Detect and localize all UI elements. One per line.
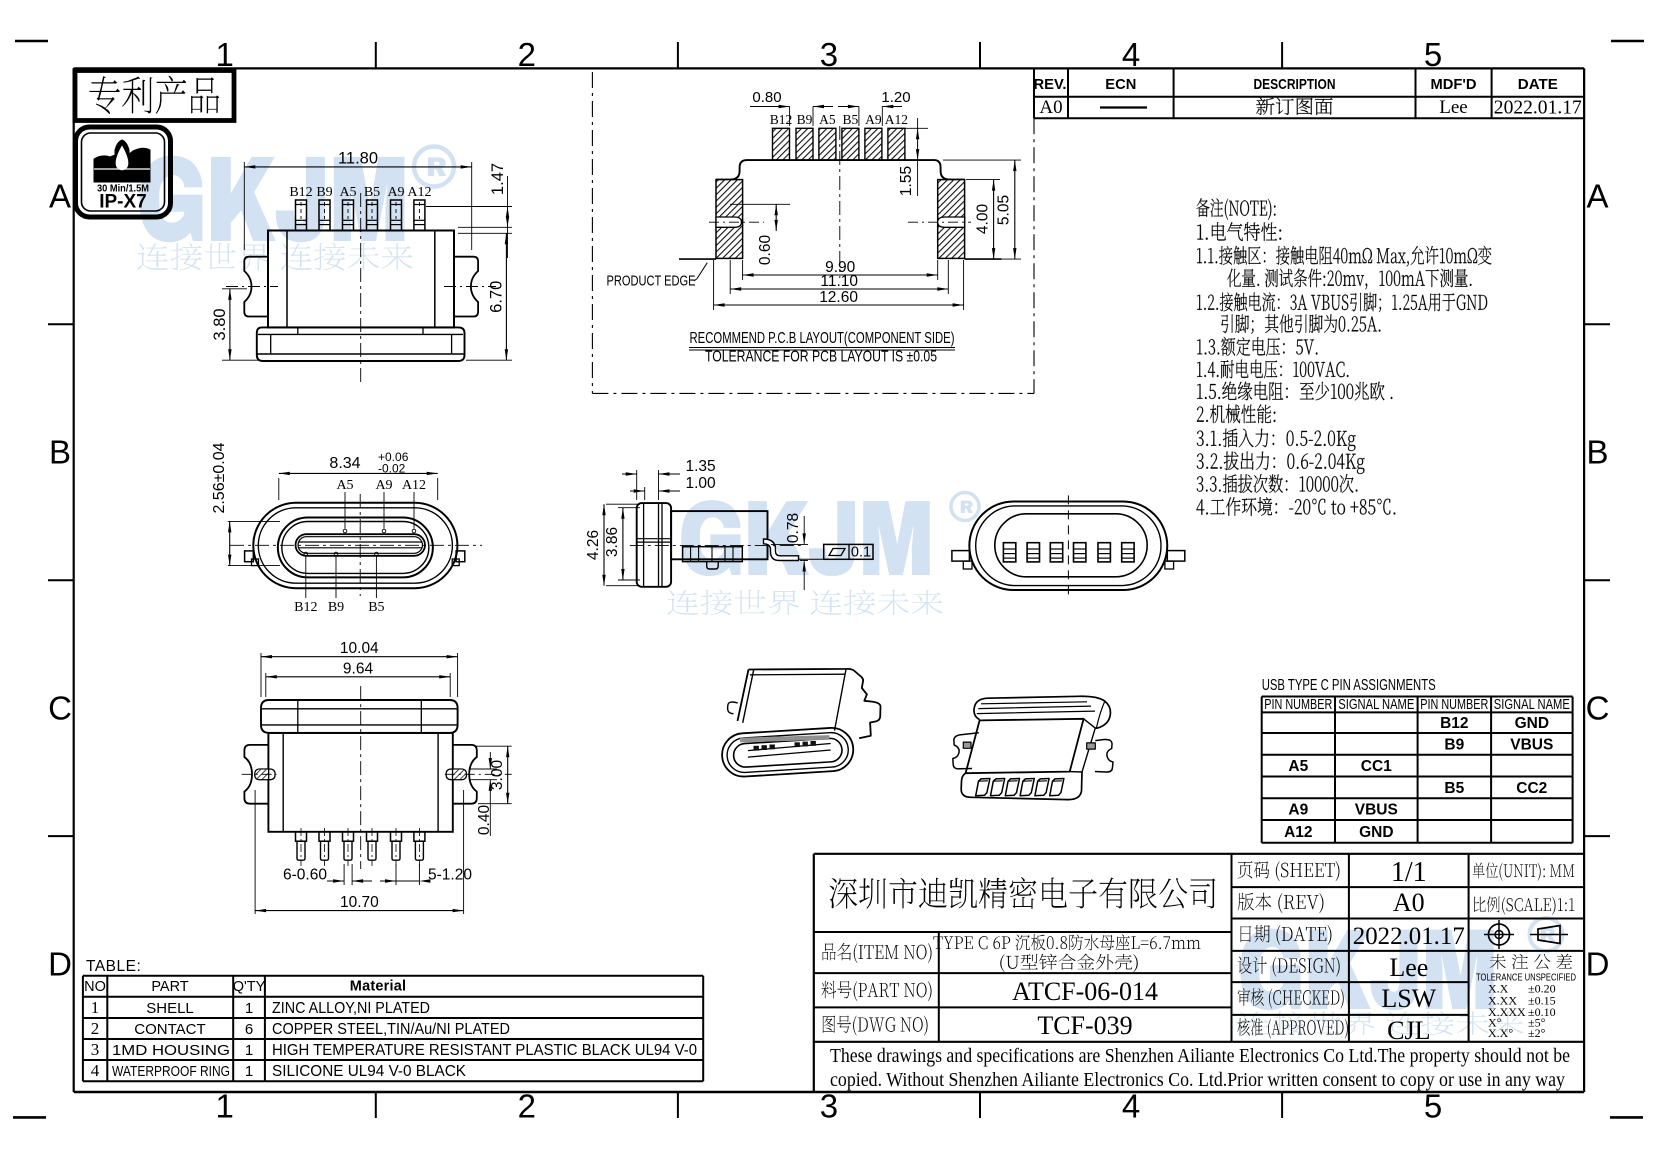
svg-text:A9: A9 [375, 478, 392, 493]
svg-text:4: 4 [91, 1061, 100, 1080]
svg-text:These drawings and specificati: These drawings and specifications are Sh… [830, 1046, 1570, 1067]
svg-text:IP-X7: IP-X7 [99, 192, 147, 213]
svg-text:HIGH TEMPERATURE RESISTANT: HIGH TEMPERATURE RESISTANT PLASTIC BLACK… [272, 1042, 697, 1059]
svg-text:ATCF-06-014: ATCF-06-014 [1012, 977, 1158, 1006]
svg-text:5.05: 5.05 [996, 195, 1013, 225]
svg-text:1: 1 [216, 1088, 234, 1125]
svg-text:GND: GND [1515, 715, 1549, 732]
svg-text:B: B [1586, 434, 1608, 471]
svg-text:0.1: 0.1 [851, 545, 871, 561]
svg-text:A12: A12 [1284, 824, 1312, 841]
svg-text:4.00: 4.00 [975, 204, 992, 235]
svg-text:10.70: 10.70 [340, 894, 379, 911]
svg-text:RECOMMEND P.C.B LAYOUT(COMPONE: RECOMMEND P.C.B LAYOUT(COMPONENT SIDE) [690, 330, 955, 347]
svg-text:ZINC ALLOY,NI PLATED: ZINC ALLOY,NI PLATED [272, 1000, 430, 1017]
svg-text:1: 1 [245, 1000, 253, 1017]
svg-text:CONTACT: CONTACT [134, 1021, 205, 1038]
svg-text:3: 3 [820, 36, 838, 73]
svg-text:A12: A12 [885, 112, 908, 127]
svg-text:SIGNAL NAME: SIGNAL NAME [1494, 697, 1570, 713]
svg-text:11.10: 11.10 [820, 273, 858, 290]
svg-text:4: 4 [1122, 1088, 1140, 1125]
svg-text:SHELL: SHELL [146, 1000, 194, 1017]
svg-text:B9: B9 [797, 112, 813, 127]
svg-text:1MD HOUSING: 1MD HOUSING [112, 1043, 230, 1059]
svg-text:8.34: 8.34 [329, 455, 360, 472]
svg-text:PART: PART [151, 979, 188, 995]
svg-text:SILICONE UL94 V-0 BLACK: SILICONE UL94 V-0 BLACK [272, 1063, 467, 1080]
svg-text:5: 5 [1424, 1088, 1442, 1125]
svg-text:4.26: 4.26 [585, 530, 602, 560]
svg-text:B12: B12 [770, 112, 793, 127]
svg-text:2.56±0.04: 2.56±0.04 [211, 442, 228, 513]
svg-text:B5: B5 [1444, 780, 1464, 797]
svg-text:DATE: DATE [1518, 76, 1558, 93]
svg-text:A5: A5 [339, 185, 356, 200]
svg-text:3.80: 3.80 [211, 308, 229, 340]
svg-text:B5: B5 [368, 600, 384, 615]
svg-text:Material: Material [350, 979, 406, 995]
svg-text:COPPER STEEL,TIN/Au/NI PLATE: COPPER STEEL,TIN/Au/NI PLATED [272, 1021, 510, 1038]
svg-text:X.X°: X.X° [1488, 1026, 1513, 1040]
svg-text:B9: B9 [328, 600, 344, 615]
svg-text:A: A [49, 178, 71, 215]
svg-text:MDF'D: MDF'D [1431, 76, 1477, 93]
svg-text:B9: B9 [316, 185, 332, 200]
svg-text:PIN NUMBER: PIN NUMBER [1264, 697, 1332, 713]
svg-text:1/1: 1/1 [1391, 857, 1427, 888]
svg-text:A5: A5 [1288, 758, 1308, 775]
svg-text:1.00: 1.00 [686, 475, 717, 492]
svg-text:9.64: 9.64 [343, 660, 374, 677]
svg-text:B12: B12 [289, 185, 312, 200]
svg-text:6: 6 [245, 1021, 253, 1038]
svg-text:10.04: 10.04 [340, 640, 379, 657]
svg-text:C: C [48, 690, 72, 727]
svg-text:B: B [49, 434, 71, 471]
svg-text:4: 4 [1122, 36, 1140, 73]
svg-text:CJL: CJL [1387, 1016, 1430, 1045]
svg-text:C: C [1586, 690, 1610, 727]
svg-text:5-1.20: 5-1.20 [428, 867, 472, 884]
svg-text:A12: A12 [402, 478, 426, 493]
svg-text:3.00: 3.00 [489, 760, 506, 791]
svg-text:D: D [48, 946, 72, 983]
svg-text:REV.: REV. [1034, 76, 1067, 93]
svg-text:B12: B12 [294, 600, 317, 615]
svg-text:1: 1 [91, 998, 100, 1017]
svg-text:1: 1 [245, 1042, 253, 1059]
svg-text:Lee: Lee [1389, 953, 1428, 982]
svg-text:VBUS: VBUS [1510, 736, 1553, 753]
svg-text:D: D [1586, 946, 1610, 983]
svg-text:3: 3 [820, 1088, 838, 1125]
svg-text:B5: B5 [843, 112, 859, 127]
svg-text:TCF-039: TCF-039 [1037, 1011, 1132, 1040]
svg-text:NO: NO [84, 979, 106, 995]
svg-text:TABLE:: TABLE: [86, 958, 141, 975]
svg-text:A0: A0 [1393, 888, 1425, 917]
svg-text:PIN NUMBER: PIN NUMBER [1420, 697, 1488, 713]
svg-text:TOLERANCE FOR PCB LAYOUT IS ±0: TOLERANCE FOR PCB LAYOUT IS ±0.05 [705, 349, 937, 366]
svg-text:1: 1 [216, 36, 234, 73]
svg-text:0.78: 0.78 [785, 513, 802, 543]
svg-text:2: 2 [91, 1019, 100, 1038]
svg-text:Lee: Lee [1439, 97, 1467, 118]
svg-text:6.70: 6.70 [487, 281, 505, 313]
svg-text:DESCRIPTION: DESCRIPTION [1254, 76, 1336, 93]
svg-text:1.35: 1.35 [686, 458, 716, 475]
svg-text:0.60: 0.60 [757, 235, 774, 266]
svg-text:A: A [1586, 178, 1608, 215]
svg-text:11.80: 11.80 [338, 149, 378, 167]
svg-text:6-0.60: 6-0.60 [283, 867, 327, 884]
svg-text:USB TYPE C PIN ASSIGNMENTS: USB TYPE C PIN ASSIGNMENTS [1262, 677, 1436, 694]
svg-text:0.40: 0.40 [476, 805, 493, 836]
svg-text:LSW: LSW [1381, 984, 1436, 1013]
svg-text:A5: A5 [336, 478, 353, 493]
svg-text:Q'TY: Q'TY [233, 979, 266, 995]
svg-text:ECN: ECN [1105, 76, 1136, 93]
svg-text:copied. Without Shenzhen Ailia: copied. Without Shenzhen Ailiante Electr… [830, 1070, 1565, 1091]
svg-text:GND: GND [1359, 824, 1393, 841]
svg-text:A9: A9 [865, 112, 882, 127]
svg-text:1.20: 1.20 [881, 89, 910, 106]
svg-text:VBUS: VBUS [1355, 802, 1398, 819]
svg-text:CC1: CC1 [1361, 758, 1392, 775]
svg-text:B12: B12 [1440, 715, 1468, 732]
svg-text:2: 2 [518, 1088, 536, 1125]
svg-text:PRODUCT EDGE: PRODUCT EDGE [607, 273, 696, 290]
svg-text:CC2: CC2 [1516, 780, 1547, 797]
svg-text:B9: B9 [1444, 736, 1464, 753]
svg-text:2022.01.17: 2022.01.17 [1494, 98, 1582, 119]
svg-text:SIGNAL NAME: SIGNAL NAME [1338, 697, 1414, 713]
svg-text:A5: A5 [819, 112, 836, 127]
svg-text:3: 3 [91, 1040, 100, 1059]
svg-text:A12: A12 [407, 185, 431, 200]
svg-text:1: 1 [245, 1063, 253, 1080]
svg-text:12.60: 12.60 [819, 289, 858, 306]
svg-text:1.47: 1.47 [489, 163, 507, 195]
svg-text:A9: A9 [387, 185, 404, 200]
svg-text:3.86: 3.86 [604, 527, 621, 557]
svg-text:WATERPROOF RING: WATERPROOF RING [112, 1064, 230, 1080]
svg-text:5: 5 [1424, 36, 1442, 73]
svg-text:A9: A9 [1288, 802, 1308, 819]
svg-text:±2°: ±2° [1528, 1026, 1546, 1040]
svg-text:2: 2 [518, 36, 536, 73]
svg-text:1.55: 1.55 [898, 166, 915, 196]
svg-text:A0: A0 [1039, 97, 1062, 118]
svg-text:0.80: 0.80 [752, 89, 781, 106]
svg-text:B5: B5 [364, 185, 380, 200]
svg-text:2022.01.17: 2022.01.17 [1353, 923, 1465, 950]
